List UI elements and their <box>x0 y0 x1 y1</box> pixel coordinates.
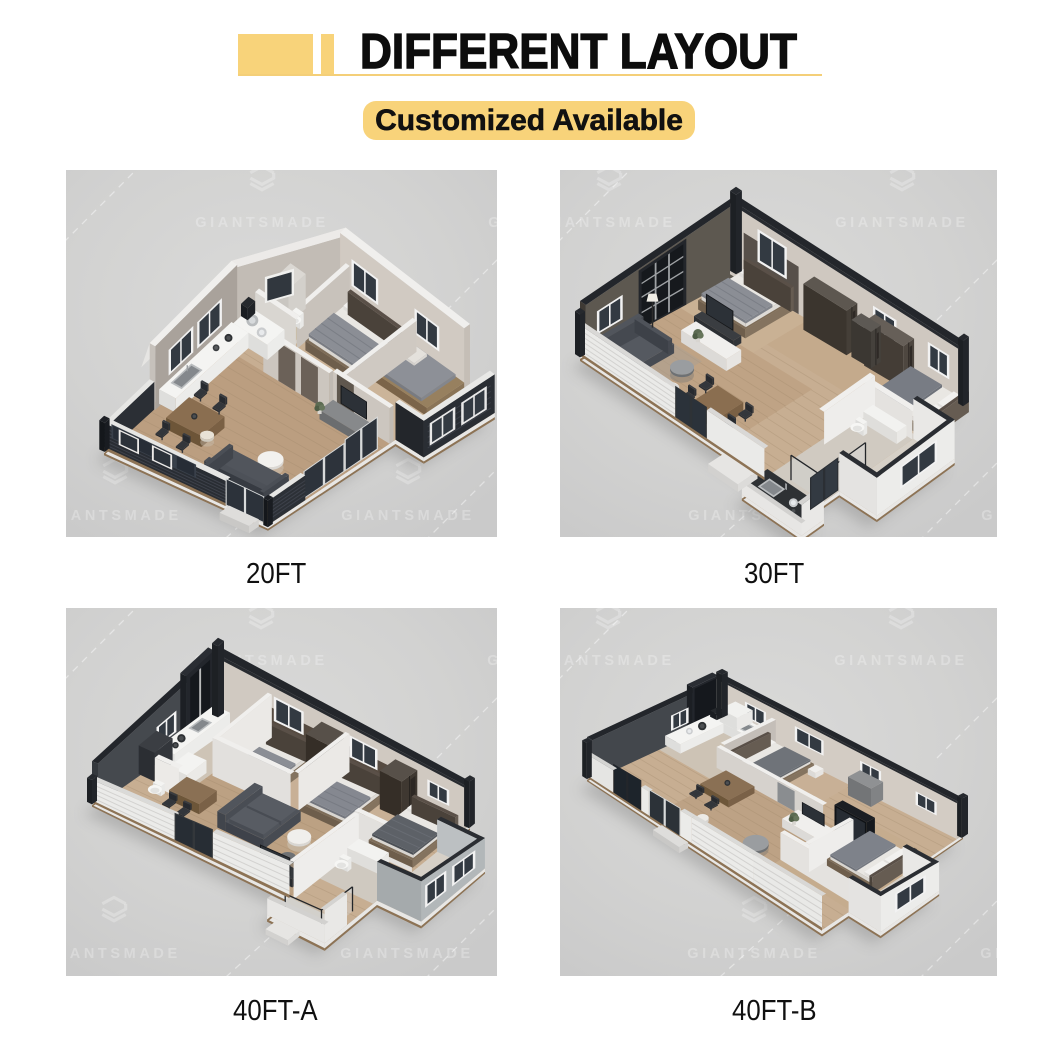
svg-text:GIANTSMADE: GIANTSMADE <box>66 508 182 524</box>
svg-text:GIANTSMADE: GIANTSMADE <box>340 946 473 962</box>
svg-text:GIANTSMADE: GIANTSMADE <box>488 215 497 231</box>
svg-text:GIANTSMADE: GIANTSMADE <box>980 946 997 962</box>
svg-text:GIANTSMADE: GIANTSMADE <box>981 508 997 524</box>
svg-text:GIANTSMADE: GIANTSMADE <box>487 653 497 669</box>
svg-text:GIANTSMADE: GIANTSMADE <box>66 946 181 962</box>
svg-text:GIANTSMADE: GIANTSMADE <box>835 215 968 231</box>
svg-text:GIANTSMADE: GIANTSMADE <box>195 215 328 231</box>
svg-text:GIANTSMADE: GIANTSMADE <box>687 946 820 962</box>
svg-text:GIANTSMADE: GIANTSMADE <box>834 653 967 669</box>
